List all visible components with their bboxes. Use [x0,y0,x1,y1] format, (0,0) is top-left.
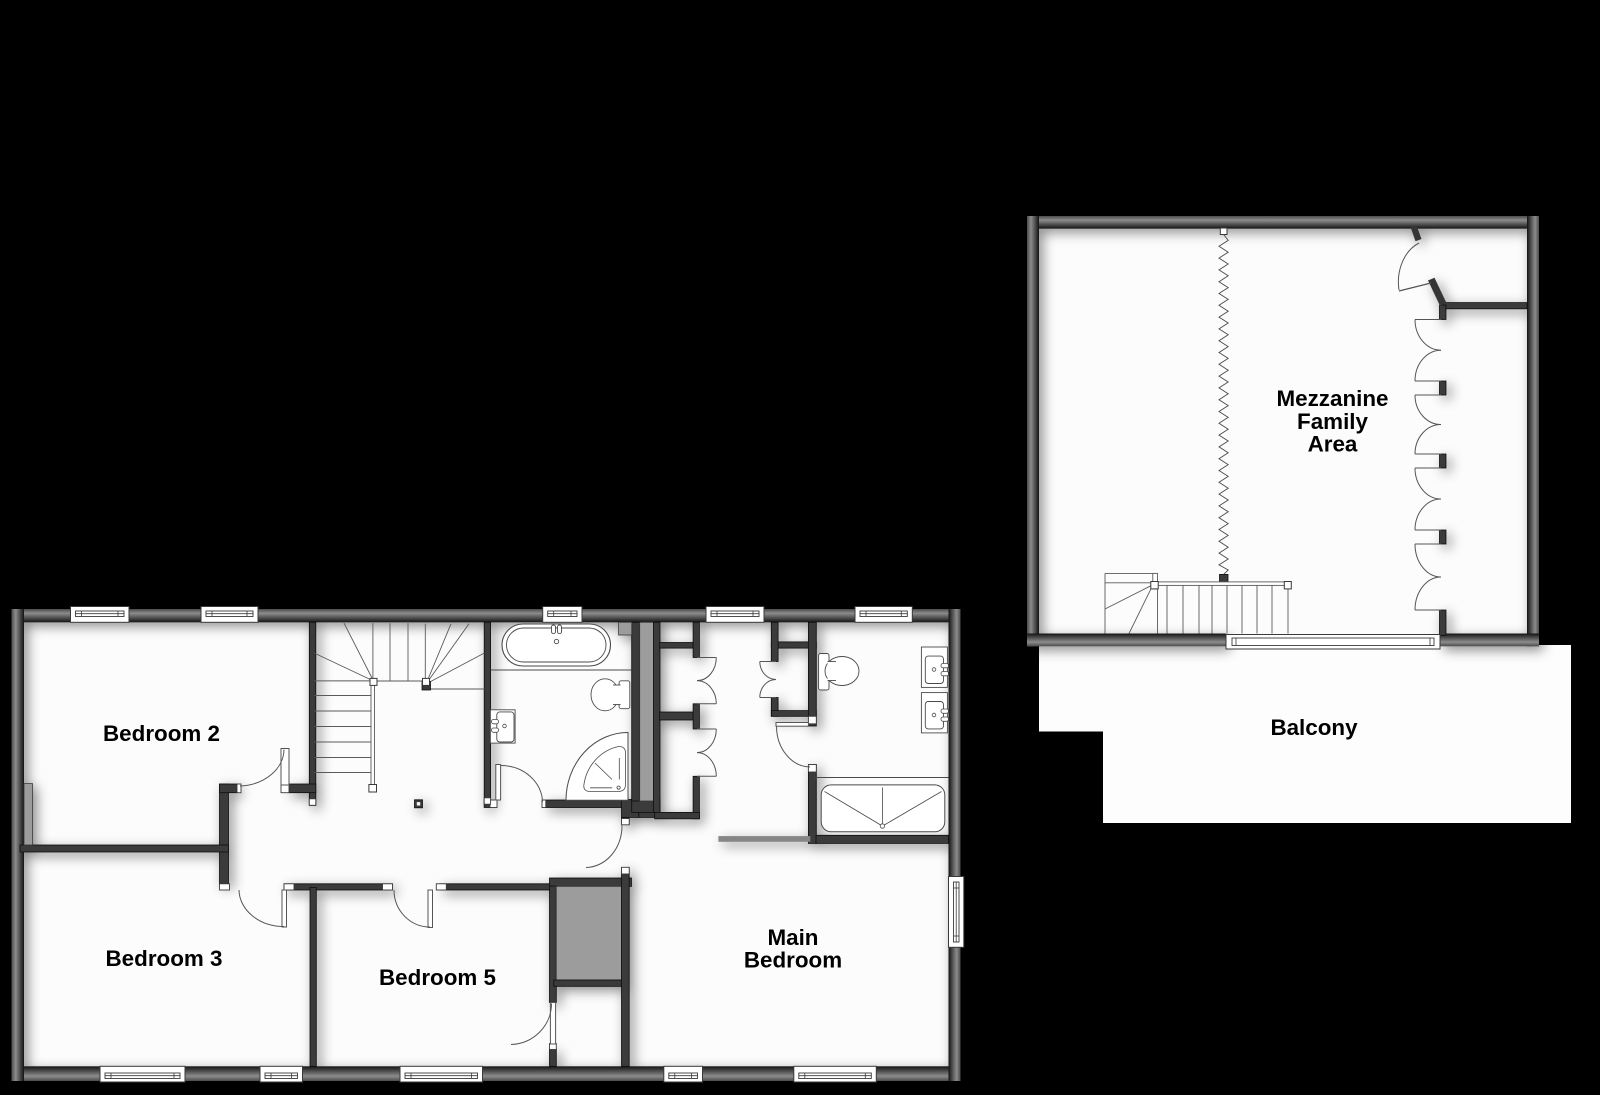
svg-text:Balcony: Balcony [1270,715,1358,740]
svg-text:Family: Family [1297,409,1368,434]
svg-text:Bedroom 2: Bedroom 2 [103,721,220,746]
svg-text:Main: Main [767,925,818,950]
svg-text:Bedroom 5: Bedroom 5 [379,965,496,990]
svg-text:Mezzanine: Mezzanine [1277,386,1389,411]
svg-text:Bedroom 3: Bedroom 3 [106,946,223,971]
svg-text:Area: Area [1308,432,1358,457]
svg-text:Bedroom: Bedroom [744,948,842,973]
